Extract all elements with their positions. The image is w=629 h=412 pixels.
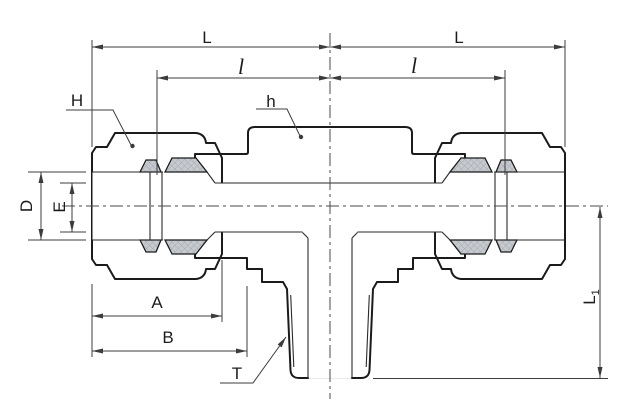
- label-T: T: [232, 364, 242, 383]
- label-l-left: l: [238, 54, 244, 79]
- label-L-left: L: [202, 28, 211, 47]
- label-D: D: [17, 200, 36, 212]
- leader-H-dot: [130, 144, 134, 148]
- label-H: H: [71, 91, 83, 110]
- label-l-right: l: [411, 53, 417, 78]
- label-h: h: [266, 92, 275, 111]
- label-E: E: [50, 201, 69, 212]
- label-L1-main: L: [580, 295, 599, 304]
- technical-drawing-page: L L l l H h D E A B T L1: [0, 0, 629, 412]
- label-L1-sub: 1: [590, 289, 602, 295]
- label-B: B: [162, 328, 173, 347]
- label-L-right: L: [454, 28, 463, 47]
- leader-h-dot: [299, 135, 303, 139]
- label-A: A: [151, 293, 163, 312]
- branch-tee-fitting-drawing: L L l l H h D E A B T L1: [0, 0, 629, 412]
